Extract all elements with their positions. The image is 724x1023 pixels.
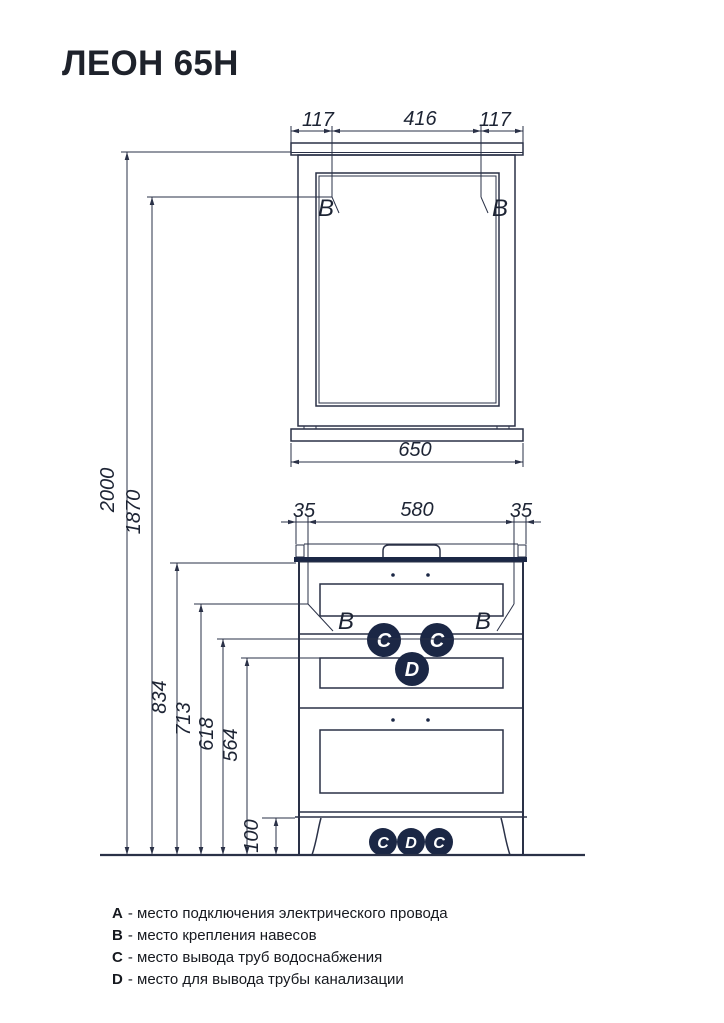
legend-desc: - место крепления навесов bbox=[128, 927, 317, 944]
dim-label-117-left: 117 bbox=[302, 109, 335, 131]
drain-port-letter: D bbox=[405, 835, 417, 852]
legend-row-electric: A- место подключения электрического пров… bbox=[112, 903, 448, 925]
basin-edge-left bbox=[296, 545, 304, 557]
arrowhead bbox=[245, 658, 250, 666]
water-port-letter: C bbox=[430, 630, 445, 652]
legend-key: B bbox=[112, 927, 123, 944]
arrowhead bbox=[291, 460, 299, 465]
dim-label-35-left: 35 bbox=[293, 500, 316, 522]
basin-front-edge bbox=[294, 557, 527, 562]
drawer-panel-bottom bbox=[320, 730, 503, 793]
arrowhead bbox=[274, 847, 279, 855]
drawer-handle-dot bbox=[391, 573, 395, 577]
dim-label-564: 564 bbox=[220, 728, 242, 761]
arrowhead bbox=[125, 847, 130, 855]
cabinet-mount-leader-right bbox=[497, 604, 514, 631]
dim-label-618: 618 bbox=[196, 717, 218, 750]
dim-label-117-right: 117 bbox=[479, 109, 512, 131]
dim-label-580: 580 bbox=[400, 499, 433, 521]
arrowhead bbox=[150, 847, 155, 855]
drawer-handle-dot bbox=[391, 718, 395, 722]
arrowhead bbox=[515, 129, 523, 134]
technical-drawing: B B 117 416 117 650 bbox=[0, 0, 724, 1023]
legend: A- место подключения электрического пров… bbox=[112, 903, 448, 991]
arrowhead bbox=[291, 129, 299, 134]
dim-label-416: 416 bbox=[403, 108, 437, 130]
legend-row-water: C- место вывода труб водоснабжения bbox=[112, 947, 448, 969]
cabinet-front-view: B B C C D C D C bbox=[294, 544, 527, 856]
dim-label-713: 713 bbox=[173, 702, 195, 735]
faucet-platform bbox=[383, 545, 440, 557]
mirror-glass-inner-line bbox=[319, 176, 496, 403]
arrowhead bbox=[274, 818, 279, 826]
legend-desc: - место вывода труб водоснабжения bbox=[128, 949, 382, 966]
dim-label-2000: 2000 bbox=[97, 468, 119, 514]
legend-key: C bbox=[112, 949, 123, 966]
arrowhead bbox=[199, 847, 204, 855]
drawing-page: ЛЕОН 65Н B B bbox=[0, 0, 724, 1023]
water-port-letter: C bbox=[377, 835, 389, 852]
mirror-width-dimension: 650 bbox=[291, 439, 523, 467]
legend-row-mount: B- место крепления навесов bbox=[112, 925, 448, 947]
mirror-mount-leader-right bbox=[481, 197, 488, 213]
arrowhead bbox=[175, 563, 180, 571]
mirror-mount-marker-right: B bbox=[492, 195, 508, 222]
dim-label-1870: 1870 bbox=[123, 490, 145, 535]
arrowhead bbox=[175, 847, 180, 855]
cabinet-mount-marker-left: B bbox=[338, 608, 354, 635]
legend-row-drain: D- место для вывода трубы канализации bbox=[112, 969, 448, 991]
dim-label-100: 100 bbox=[241, 819, 263, 852]
leg-left-inner-edge bbox=[312, 818, 321, 855]
cabinet-mount-marker-right: B bbox=[475, 608, 491, 635]
water-port-letter: C bbox=[377, 630, 392, 652]
mirror-mount-marker-left: B bbox=[318, 195, 334, 222]
drawer-handle-dot bbox=[426, 718, 430, 722]
water-port-letter: C bbox=[433, 835, 445, 852]
leg-right-inner-edge bbox=[501, 818, 510, 855]
drain-port-letter: D bbox=[405, 659, 419, 681]
dim-label-35-right: 35 bbox=[510, 500, 533, 522]
arrowhead bbox=[150, 197, 155, 205]
dim-label-834: 834 bbox=[149, 680, 171, 713]
arrowhead bbox=[199, 604, 204, 612]
legend-key: A bbox=[112, 905, 123, 922]
basin-edge-right bbox=[518, 545, 526, 557]
legend-key: D bbox=[112, 971, 123, 988]
legend-desc: - место подключения электрического прово… bbox=[128, 905, 448, 922]
dim-label-650: 650 bbox=[398, 439, 431, 461]
arrowhead bbox=[515, 460, 523, 465]
arrowhead bbox=[221, 847, 226, 855]
drawer-handle-dot bbox=[426, 573, 430, 577]
arrowhead bbox=[221, 639, 226, 647]
arrowhead bbox=[125, 152, 130, 160]
mirror-top-cap bbox=[291, 143, 523, 155]
legend-desc: - место для вывода трубы канализации bbox=[128, 971, 404, 988]
mirror-glass bbox=[316, 173, 499, 406]
mirror-front-view: B B bbox=[291, 143, 523, 441]
